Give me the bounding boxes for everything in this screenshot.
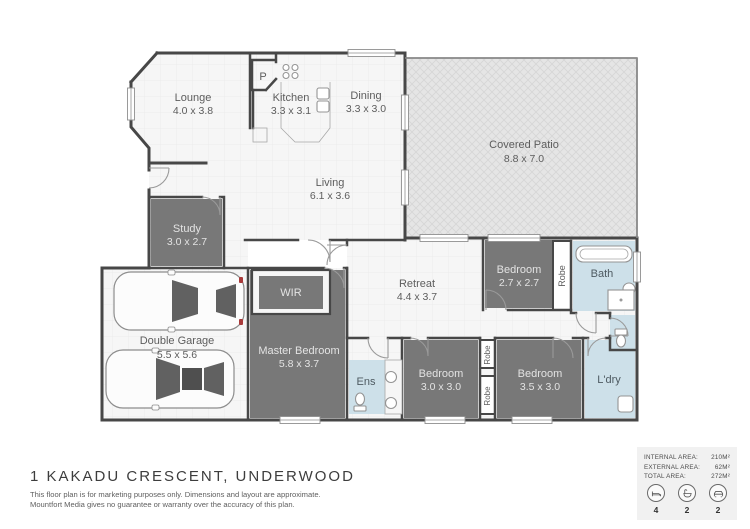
address-block: 1 KAKADU CRESCENT, UNDERWOOD This floor … xyxy=(30,468,355,510)
car-icon xyxy=(114,270,244,332)
window xyxy=(348,50,395,57)
bed-icon xyxy=(647,484,665,502)
study-label: Study xyxy=(173,223,202,235)
kitchen-dims: 3.3 x 3.1 xyxy=(271,105,311,117)
bedroom3-dims: 3.0 x 3.0 xyxy=(421,381,461,393)
laundry-trough-icon xyxy=(618,396,633,412)
toilet-icon xyxy=(615,329,627,347)
lounge-label: Lounge xyxy=(175,92,212,104)
window xyxy=(425,417,465,424)
bedroom2-dims: 2.7 x 2.7 xyxy=(499,277,539,289)
room-wir: WIR xyxy=(252,270,330,314)
window xyxy=(488,235,540,242)
living-dims: 6.1 x 3.6 xyxy=(310,190,350,202)
wir-label: WIR xyxy=(280,287,301,299)
toilet-icon xyxy=(354,393,366,411)
bedroom4-dims: 3.5 x 3.0 xyxy=(520,381,560,393)
shower-drain xyxy=(620,299,623,302)
basin-icon xyxy=(386,398,397,409)
bath-count: 2 xyxy=(685,505,690,515)
window xyxy=(512,417,552,424)
bathrooms-count: 2 xyxy=(678,484,696,515)
disclaimer-text: This floor plan is for marketing purpose… xyxy=(30,490,355,510)
bath-label: Bath xyxy=(591,268,614,280)
patio-dims: 8.8 x 7.0 xyxy=(504,153,544,165)
bathtub-icon xyxy=(576,246,632,262)
disclaimer-line-1: This floor plan is for marketing purpose… xyxy=(30,490,355,500)
disclaimer-line-2: Mountfort Media gives no guarantee or wa… xyxy=(30,500,355,510)
car-icon xyxy=(709,484,727,502)
internal-area-label: INTERNAL AREA: xyxy=(644,454,698,461)
bath-icon xyxy=(678,484,696,502)
internal-area-value: 210M² xyxy=(711,454,730,461)
total-area-label: TOTAL AREA: xyxy=(644,473,686,480)
retreat-label: Retreat xyxy=(399,278,435,290)
fridge-icon xyxy=(317,88,329,99)
bedroom2-label: Bedroom xyxy=(497,264,542,276)
pantry-label: P xyxy=(259,71,266,83)
summary-icons: 4 2 2 xyxy=(644,484,730,515)
summary-row: TOTAL AREA: 272M² xyxy=(644,473,730,480)
page-title: 1 KAKADU CRESCENT, UNDERWOOD xyxy=(30,468,355,485)
kitchen-label: Kitchen xyxy=(273,92,310,104)
window xyxy=(402,95,409,130)
total-area-value: 272M² xyxy=(711,473,730,480)
ens-label: Ens xyxy=(357,376,376,388)
basin-icon xyxy=(386,372,397,383)
external-area-value: 62M² xyxy=(715,464,730,471)
dining-dims: 3.3 x 3.0 xyxy=(346,103,386,115)
robe-label-3: Robe xyxy=(483,386,492,406)
garage-label: Double Garage xyxy=(140,335,215,347)
summary-row: INTERNAL AREA: 210M² xyxy=(644,454,730,461)
window xyxy=(634,252,641,282)
window xyxy=(280,417,320,424)
study-dims: 3.0 x 2.7 xyxy=(167,236,207,248)
floorplan-page: Covered Patio 8.8 x 7.0 WIR Robe Robe Ro… xyxy=(0,0,750,529)
robe-label-2: Robe xyxy=(483,345,492,365)
window xyxy=(420,235,468,242)
bedroom4-label: Bedroom xyxy=(518,368,563,380)
area-summary-panel: INTERNAL AREA: 210M² EXTERNAL AREA: 62M²… xyxy=(637,447,737,520)
robe-label-1: Robe xyxy=(557,265,567,287)
fridge-icon xyxy=(317,101,329,112)
laundry-label: L'dry xyxy=(597,374,621,386)
car-count: 2 xyxy=(716,505,721,515)
external-area-label: EXTERNAL AREA: xyxy=(644,464,700,471)
lounge-dims: 4.0 x 3.8 xyxy=(173,105,213,117)
bed-count: 4 xyxy=(654,505,659,515)
window xyxy=(128,88,135,120)
master-bedroom-dims: 5.8 x 3.7 xyxy=(279,358,319,370)
room-covered-patio: Covered Patio 8.8 x 7.0 xyxy=(405,58,637,238)
garage-dims: 5.5 x 5.6 xyxy=(157,349,197,361)
living-label: Living xyxy=(316,177,345,189)
retreat-dims: 4.4 x 3.7 xyxy=(397,291,437,303)
patio-label: Covered Patio xyxy=(489,139,559,151)
dining-label: Dining xyxy=(350,90,381,102)
window xyxy=(402,170,409,205)
bedroom3-label: Bedroom xyxy=(419,368,464,380)
garages-count: 2 xyxy=(709,484,727,515)
master-bedroom-label: Master Bedroom xyxy=(258,345,339,357)
summary-row: EXTERNAL AREA: 62M² xyxy=(644,464,730,471)
bedrooms-count: 4 xyxy=(647,484,665,515)
